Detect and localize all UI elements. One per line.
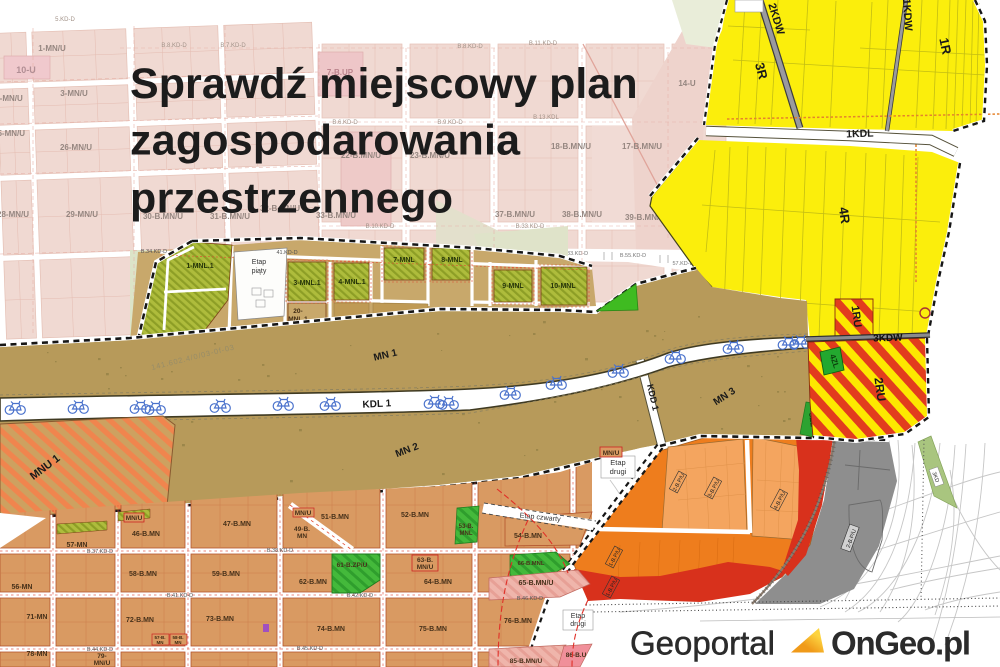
svg-text:3-MN/U: 3-MN/U [60, 89, 88, 98]
svg-text:64-B.MN: 64-B.MN [424, 579, 452, 586]
svg-text:1-MNL.1: 1-MNL.1 [186, 263, 213, 270]
svg-text:9-MNL: 9-MNL [502, 283, 524, 290]
svg-text:B.8.KD-D: B.8.KD-D [161, 43, 187, 49]
svg-text:5.KD-D: 5.KD-D [55, 17, 75, 23]
svg-text:56-MN: 56-MN [11, 584, 32, 591]
svg-text:Etap: Etap [610, 458, 625, 467]
svg-text:18-B.MN/U: 18-B.MN/U [551, 142, 591, 151]
svg-text:Etap: Etap [571, 613, 586, 620]
svg-text:B.7.KD-D: B.7.KD-D [220, 43, 246, 49]
svg-text:53-B.: 53-B. [459, 524, 474, 530]
svg-text:37-B.MN/U: 37-B.MN/U [495, 210, 535, 219]
svg-text:MN/U: MN/U [94, 660, 111, 667]
svg-text:46-B.MN: 46-B.MN [132, 531, 160, 538]
svg-text:MN: MN [175, 640, 182, 645]
svg-text:75-B.MN: 75-B.MN [419, 626, 447, 633]
svg-text:B.10.KD-D: B.10.KD-D [366, 224, 395, 230]
svg-text:61-B.ZPiU: 61-B.ZPiU [337, 562, 368, 569]
svg-text:79-: 79- [97, 653, 106, 660]
svg-text:10-MNL: 10-MNL [550, 283, 576, 290]
svg-text:58-B.MN: 58-B.MN [129, 571, 157, 578]
svg-text:49-B.: 49-B. [294, 526, 310, 533]
svg-text:3-MNL.1: 3-MNL.1 [293, 280, 320, 287]
svg-text:4-MN/U: 4-MN/U [0, 94, 23, 103]
svg-text:29-MN/U: 29-MN/U [66, 210, 98, 219]
svg-text:B.11.KD-D: B.11.KD-D [529, 41, 558, 47]
svg-text:MN/U: MN/U [295, 510, 312, 517]
svg-text:85-B.MN/U: 85-B.MN/U [510, 658, 543, 665]
svg-text:MN: MN [297, 533, 307, 540]
svg-text:1KDL: 1KDL [846, 128, 874, 141]
svg-text:47-B.MN: 47-B.MN [223, 521, 251, 528]
svg-text:74-B.MN: 74-B.MN [317, 626, 345, 633]
svg-text:drugi: drugi [570, 621, 586, 628]
svg-text:B.42.KD-D: B.42.KD-D [347, 593, 373, 599]
svg-text:Sprawdź miejscowy plan: Sprawdź miejscowy plan [130, 60, 638, 108]
svg-text:26-MN/U: 26-MN/U [60, 143, 92, 152]
svg-text:76-B.MN: 76-B.MN [504, 618, 532, 625]
svg-text:B.45.KD-D: B.45.KD-D [297, 646, 323, 652]
svg-text:Geoportal: Geoportal [630, 625, 775, 662]
svg-text:72-B.MN: 72-B.MN [126, 617, 154, 624]
svg-text:drugi: drugi [610, 467, 627, 476]
svg-text:4R: 4R [836, 206, 853, 225]
svg-text:66-B.MNL: 66-B.MNL [518, 561, 545, 567]
svg-text:MN/U: MN/U [417, 564, 434, 571]
svg-text:1KDW: 1KDW [900, 0, 914, 32]
svg-text:OnGeo.pl: OnGeo.pl [831, 625, 970, 662]
svg-text:B.37.KD-D: B.37.KD-D [87, 549, 113, 555]
svg-text:przestrzennego: przestrzennego [130, 175, 453, 223]
svg-text:MN/U: MN/U [603, 450, 620, 457]
svg-text:78-MN: 78-MN [26, 651, 47, 658]
svg-text:3KDW: 3KDW [873, 332, 903, 344]
svg-text:14-U: 14-U [678, 79, 696, 88]
svg-text:MN: MN [157, 640, 164, 645]
svg-text:59-B.MN: 59-B.MN [212, 571, 240, 578]
svg-text:zagospodarowania: zagospodarowania [130, 117, 521, 165]
svg-text:B.38.KD-D: B.38.KD-D [267, 548, 293, 554]
svg-text:41.KD-D: 41.KD-D [276, 250, 297, 256]
svg-text:B.41.KD-D: B.41.KD-D [167, 593, 193, 599]
svg-text:73-B.MN: 73-B.MN [206, 616, 234, 623]
svg-text:20-: 20- [293, 308, 302, 315]
svg-text:MN/U: MN/U [126, 515, 143, 522]
svg-text:54-B.MN: 54-B.MN [514, 533, 542, 540]
svg-text:7-MNL: 7-MNL [393, 257, 415, 264]
svg-text:B.55.KD-D: B.55.KD-D [620, 253, 646, 259]
svg-text:57-MN: 57-MN [66, 542, 87, 549]
svg-text:Etap: Etap [252, 259, 267, 266]
svg-text:10-U: 10-U [16, 65, 36, 75]
svg-text:1-MN/U: 1-MN/U [38, 44, 66, 53]
svg-text:86-B.U: 86-B.U [566, 652, 587, 659]
svg-text:71-MN: 71-MN [26, 614, 47, 621]
svg-text:B.34.KD-D: B.34.KD-D [141, 249, 167, 255]
svg-text:17-B.MN/U: 17-B.MN/U [622, 142, 662, 151]
svg-text:piąty: piąty [252, 268, 267, 275]
svg-text:KDL 1: KDL 1 [362, 398, 392, 411]
svg-text:B.13.KDL: B.13.KDL [533, 115, 559, 121]
svg-text:4-MNL.1: 4-MNL.1 [338, 279, 365, 286]
svg-text:28-MN/U: 28-MN/U [0, 210, 29, 219]
svg-text:MNL: MNL [460, 531, 473, 537]
svg-text:51-B.MN: 51-B.MN [321, 514, 349, 521]
svg-text:65-B.MN/U: 65-B.MN/U [518, 580, 553, 587]
svg-text:8-MNL: 8-MNL [441, 257, 463, 264]
svg-text:38-B.MN/U: 38-B.MN/U [562, 210, 602, 219]
svg-text:B.33.KD-D: B.33.KD-D [516, 224, 545, 230]
svg-text:B.46.KD-D: B.46.KD-D [517, 596, 543, 602]
svg-text:B.44.KD-D: B.44.KD-D [87, 647, 113, 653]
svg-text:25-MN/U: 25-MN/U [0, 129, 25, 138]
svg-text:63-B.: 63-B. [417, 557, 433, 564]
svg-text:62-B.MN: 62-B.MN [299, 579, 327, 586]
svg-text:52-B.MN: 52-B.MN [401, 512, 429, 519]
svg-text:B.8.KD-D: B.8.KD-D [457, 44, 483, 50]
